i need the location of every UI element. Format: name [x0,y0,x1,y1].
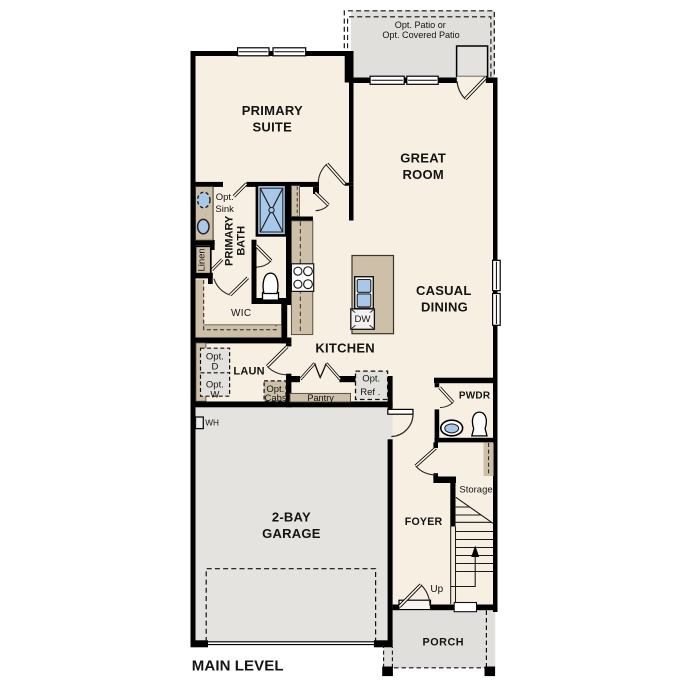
svg-text:Opt.: Opt. [362,373,380,384]
svg-text:GARAGE: GARAGE [262,526,321,541]
svg-text:Pantry: Pantry [307,393,334,403]
svg-text:W: W [210,390,219,401]
svg-text:FOYER: FOYER [405,516,443,528]
svg-text:BATH: BATH [235,226,247,256]
svg-text:MAIN LEVEL: MAIN LEVEL [192,657,284,674]
svg-text:Cabs: Cabs [265,393,287,404]
svg-text:KITCHEN: KITCHEN [315,341,375,356]
svg-text:Sink: Sink [215,204,234,215]
svg-text:Opt. Patio or: Opt. Patio or [395,20,446,30]
svg-text:PRIMARY: PRIMARY [224,215,236,266]
svg-text:Linen: Linen [196,248,207,271]
svg-text:Storage: Storage [459,484,492,495]
svg-text:Up: Up [430,584,443,595]
svg-text:Ref .: Ref . [360,387,380,398]
svg-text:DINING: DINING [421,299,468,314]
svg-text:WIC: WIC [231,308,251,319]
svg-text:CASUAL: CASUAL [416,283,472,298]
svg-text:2-BAY: 2-BAY [272,510,311,525]
svg-text:DW: DW [355,314,372,325]
svg-text:SUITE: SUITE [253,119,293,134]
svg-text:D: D [211,362,218,373]
svg-text:Opt. Covered Patio: Opt. Covered Patio [382,30,459,40]
svg-text:WH: WH [205,418,219,427]
svg-text:PRIMARY: PRIMARY [242,103,303,118]
svg-text:Opt.: Opt. [216,192,234,203]
svg-text:ROOM: ROOM [402,167,443,182]
svg-text:PWDR: PWDR [459,391,491,402]
svg-text:GREAT: GREAT [400,151,446,166]
svg-text:LAUN: LAUN [233,366,264,378]
svg-text:PORCH: PORCH [423,637,465,649]
